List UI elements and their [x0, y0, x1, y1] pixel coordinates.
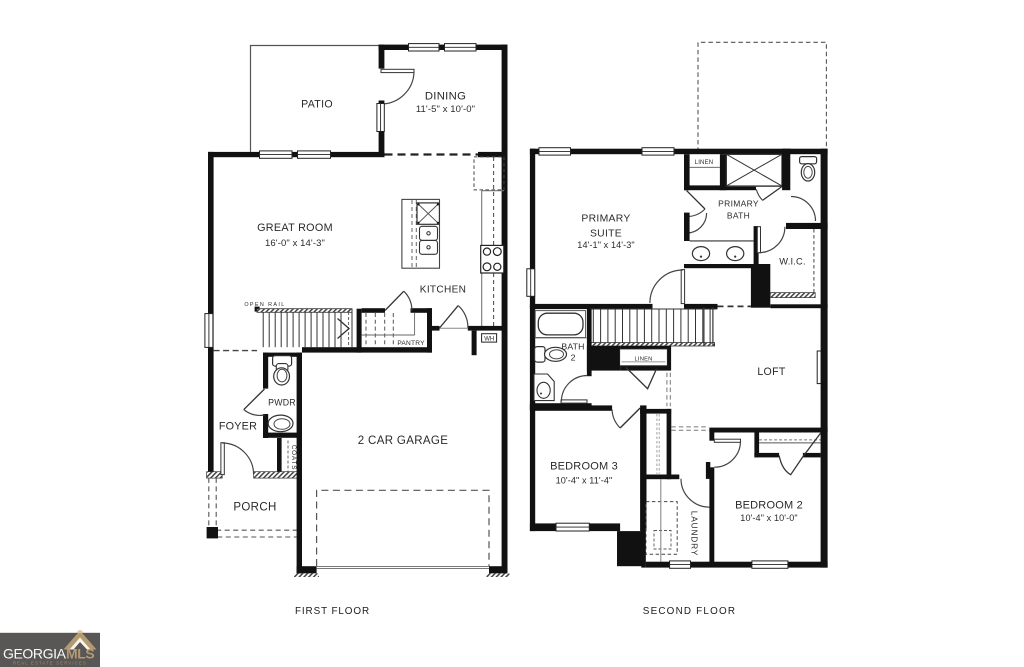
svg-text:2: 2	[571, 353, 576, 363]
svg-text:LINEN: LINEN	[634, 356, 652, 362]
svg-text:FOYER: FOYER	[219, 421, 257, 433]
svg-text:SECOND FLOOR: SECOND FLOOR	[643, 606, 736, 617]
svg-text:16'-0" x 14'-3": 16'-0" x 14'-3"	[265, 238, 325, 249]
svg-text:PWDR: PWDR	[268, 398, 296, 408]
svg-text:LINEN: LINEN	[695, 160, 714, 166]
svg-text:LOFT: LOFT	[757, 366, 786, 378]
svg-text:MLS: MLS	[66, 646, 94, 662]
svg-text:LAUNDRY: LAUNDRY	[690, 511, 700, 556]
svg-text:COATS: COATS	[290, 445, 297, 471]
svg-text:14'-1" x 14'-3": 14'-1" x 14'-3"	[577, 240, 634, 250]
svg-text:BATH: BATH	[727, 211, 750, 221]
svg-text:GREAT ROOM: GREAT ROOM	[257, 222, 333, 234]
svg-text:DINING: DINING	[425, 91, 466, 103]
svg-text:SUITE: SUITE	[590, 229, 622, 240]
svg-text:10'-4" x 11'-4": 10'-4" x 11'-4"	[556, 476, 613, 486]
svg-text:PATIO: PATIO	[301, 99, 333, 111]
svg-text:OPEN RAIL: OPEN RAIL	[244, 302, 285, 308]
svg-text:WH: WH	[484, 337, 494, 343]
svg-text:BEDROOM 2: BEDROOM 2	[735, 500, 803, 512]
svg-text:BEDROOM 3: BEDROOM 3	[550, 461, 618, 473]
svg-text:KITCHEN: KITCHEN	[420, 285, 466, 296]
svg-text:GEORGIA: GEORGIA	[3, 646, 67, 662]
svg-text:11'-5" x 10'-0": 11'-5" x 10'-0"	[416, 104, 475, 115]
svg-text:PORCH: PORCH	[233, 502, 276, 514]
svg-text:REAL ESTATE SERVICES: REAL ESTATE SERVICES	[13, 661, 87, 666]
svg-text:PRIMARY: PRIMARY	[581, 214, 630, 225]
svg-text:2 CAR GARAGE: 2 CAR GARAGE	[358, 435, 448, 447]
svg-text:PANTRY: PANTRY	[397, 340, 425, 347]
svg-text:PRIMARY: PRIMARY	[718, 199, 759, 209]
svg-text:10'-4" x 10'-0": 10'-4" x 10'-0"	[740, 513, 797, 523]
svg-text:FIRST FLOOR: FIRST FLOOR	[295, 606, 370, 617]
svg-text:W.I.C.: W.I.C.	[779, 257, 806, 267]
